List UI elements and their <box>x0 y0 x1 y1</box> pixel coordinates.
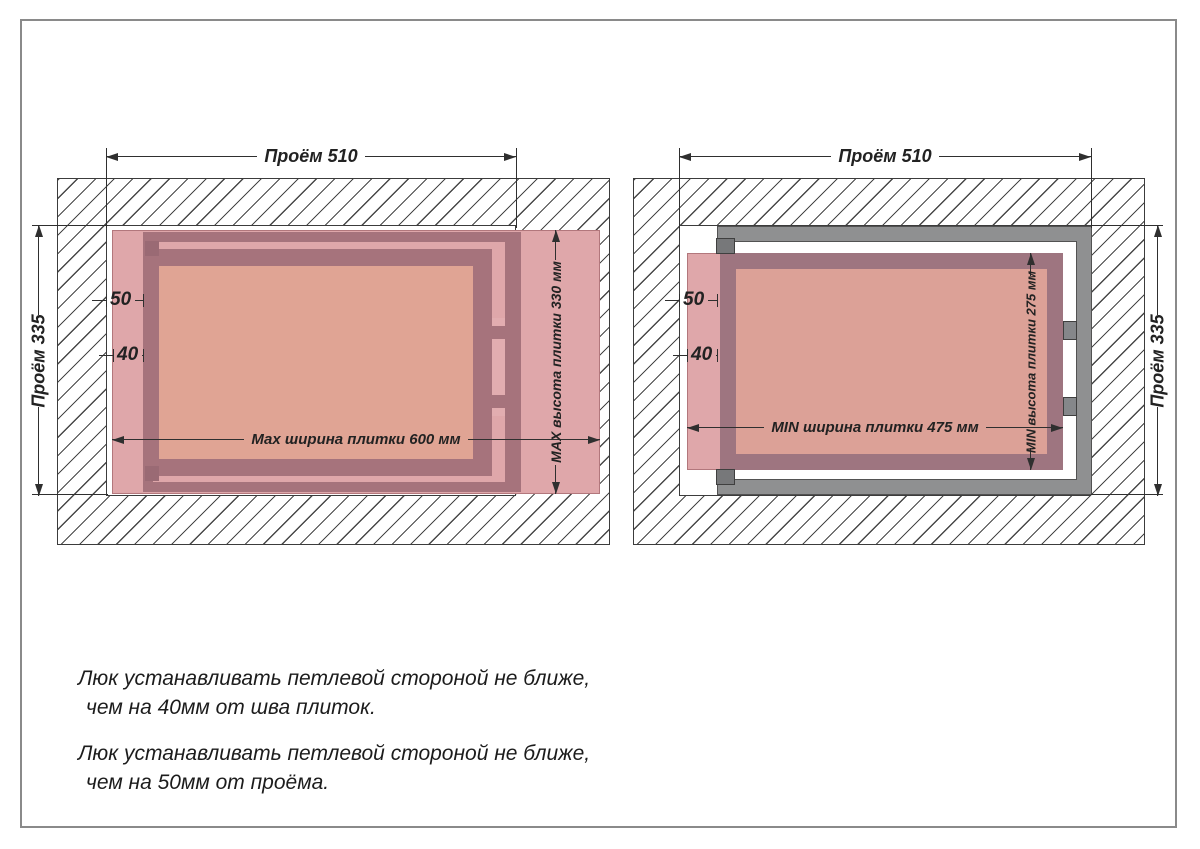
dimension-label: Проём 510 <box>257 146 364 167</box>
door-handle-bottom-pin <box>492 395 505 408</box>
arrow-right-icon <box>588 436 600 444</box>
arrow-left-icon <box>687 424 699 432</box>
dimension-label: MIN ширина плитки 475 мм <box>764 419 985 436</box>
dimension-offset-50-right: 50 <box>665 290 718 310</box>
dimension-label: Проём 335 <box>28 314 49 407</box>
arrow-up-icon <box>1027 253 1035 265</box>
dimension-opening-width-right: Проём 510 <box>679 148 1091 165</box>
dimension-offset-40-left: 40 <box>99 345 144 365</box>
arrow-left-icon <box>679 153 691 161</box>
arrow-right-icon <box>1051 424 1063 432</box>
dimension-label: Проём 335 <box>1147 314 1168 407</box>
arrow-up-icon <box>1154 225 1162 237</box>
hinge-bottom-right-diagram-icon <box>716 469 735 485</box>
note-line: чем на 50мм от проёма. <box>78 768 590 797</box>
dimension-label: 50 <box>679 289 708 311</box>
dimension-tile-width-max: Мах ширина плитки 600 мм <box>112 431 600 448</box>
arrow-up-icon <box>35 225 43 237</box>
arrow-right-icon <box>504 153 516 161</box>
extension-line <box>516 148 517 228</box>
dimension-label: 40 <box>113 344 142 366</box>
dimension-opening-height-left: Проём 335 <box>30 225 47 496</box>
arrow-down-icon <box>35 484 43 496</box>
hinge-top-right-diagram-icon <box>716 238 735 254</box>
latch-bottom-icon <box>1063 397 1077 416</box>
arrow-down-icon <box>1154 484 1162 496</box>
dimension-offset-40-right: 40 <box>673 345 718 365</box>
arrow-right-icon <box>1079 153 1091 161</box>
arrow-left-icon <box>106 153 118 161</box>
extension-line <box>1091 148 1092 228</box>
dimension-label: 40 <box>687 344 716 366</box>
note-seam: Люк устанавливать петлевой стороной не б… <box>78 664 590 722</box>
dimension-tile-height-min: MIN высота плитки 275 мм <box>1022 253 1039 470</box>
installation-notes: Люк устанавливать петлевой стороной не б… <box>78 664 590 814</box>
hinge-top-left-icon <box>145 241 159 256</box>
dimension-label: Проём 510 <box>831 146 938 167</box>
dimension-tile-height-max: МАХ высота плитки 330 мм <box>547 230 564 494</box>
arrow-left-icon <box>112 436 124 444</box>
note-line: Люк устанавливать петлевой стороной не б… <box>78 664 590 693</box>
latch-top-icon <box>1063 321 1077 340</box>
dimension-offset-50-left: 50 <box>92 290 144 310</box>
blueprint-page: Проём 510 Проём 335 50 40 <box>0 0 1200 849</box>
dimension-opening-height-right: Проём 335 <box>1149 225 1166 496</box>
arrow-up-icon <box>552 230 560 242</box>
dimension-label: Мах ширина плитки 600 мм <box>244 431 467 448</box>
arrow-down-icon <box>1027 458 1035 470</box>
hinge-bottom-left-icon <box>145 466 159 481</box>
dimension-tile-width-min: MIN ширина плитки 475 мм <box>687 419 1063 436</box>
dimension-label: 50 <box>106 289 135 311</box>
dimension-label: MIN высота плитки 275 мм <box>1023 270 1038 452</box>
arrow-down-icon <box>552 482 560 494</box>
door-handle-top-pin <box>492 326 505 339</box>
dimension-opening-width-left: Проём 510 <box>106 148 516 165</box>
hatch-door-right <box>720 253 1063 470</box>
dimension-label: МАХ высота плитки 330 мм <box>548 261 564 463</box>
note-line: чем на 40мм от шва плиток. <box>78 693 590 722</box>
note-line: Люк устанавливать петлевой стороной не б… <box>78 739 590 768</box>
note-opening: Люк устанавливать петлевой стороной не б… <box>78 739 590 797</box>
